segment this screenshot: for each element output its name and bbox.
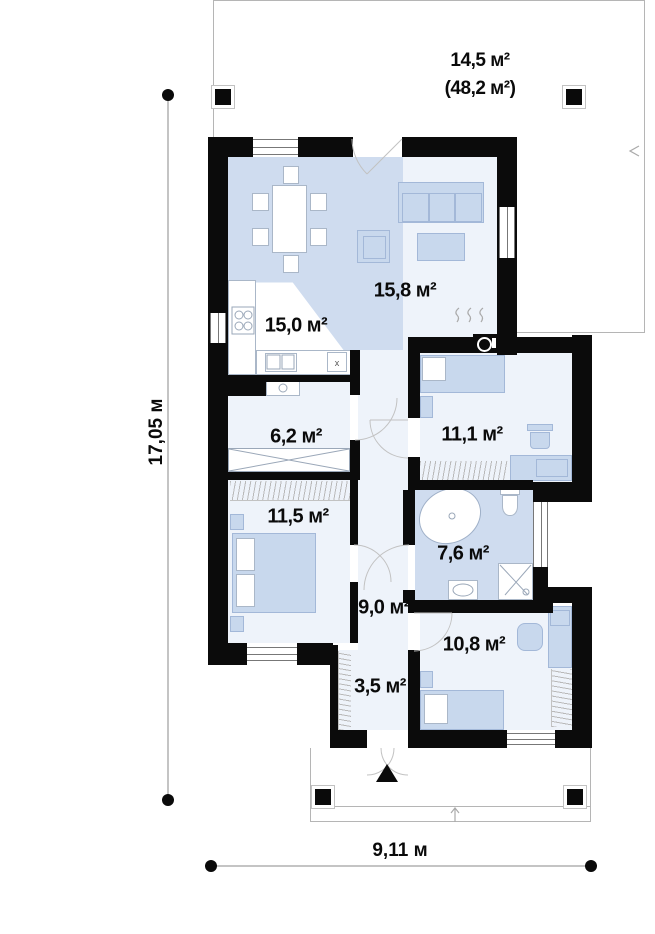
wardrobe-hatch bbox=[230, 481, 350, 501]
terrace-chevron-icon bbox=[630, 146, 639, 156]
wall bbox=[297, 643, 333, 665]
wardrobe-hatch bbox=[420, 461, 508, 482]
dim-dot bbox=[162, 794, 174, 806]
pillow bbox=[424, 694, 448, 724]
window bbox=[533, 502, 548, 567]
wall bbox=[298, 137, 353, 157]
column bbox=[215, 89, 231, 105]
wall bbox=[350, 480, 358, 545]
wall bbox=[408, 337, 592, 353]
coffee-table bbox=[417, 233, 465, 261]
dim-height-label: 17,05 м bbox=[146, 382, 168, 482]
plant-pot-icon bbox=[530, 432, 550, 449]
chair bbox=[252, 193, 269, 211]
toilet-bowl bbox=[502, 495, 518, 516]
wall bbox=[548, 587, 592, 603]
sofa-cushion bbox=[454, 193, 482, 222]
column bbox=[315, 789, 331, 805]
pillow bbox=[236, 538, 255, 571]
wall bbox=[208, 137, 228, 655]
window bbox=[253, 139, 298, 155]
wall bbox=[572, 587, 592, 748]
chair bbox=[310, 193, 327, 211]
column bbox=[566, 89, 582, 105]
hall-counter bbox=[266, 381, 300, 396]
nightstand bbox=[420, 396, 433, 418]
pillow bbox=[236, 574, 255, 607]
wall bbox=[350, 440, 360, 475]
desk-laptop bbox=[550, 610, 570, 626]
stove-ring-icon bbox=[477, 337, 492, 352]
room-area-label: 15,0 м² bbox=[265, 315, 327, 338]
terrace-edge-left bbox=[213, 0, 214, 137]
dim-width-label: 9,11 м bbox=[350, 840, 450, 862]
room-area-label: 15,8 м² bbox=[374, 280, 436, 303]
pillow bbox=[422, 357, 446, 381]
wall bbox=[408, 480, 533, 490]
shower bbox=[498, 563, 533, 600]
bath-sink bbox=[448, 580, 478, 600]
sofa-cushion bbox=[402, 193, 430, 222]
chair bbox=[310, 228, 327, 246]
armchair-seat bbox=[363, 236, 386, 259]
vent-label: x bbox=[335, 358, 340, 368]
plant-pot-icon bbox=[527, 424, 553, 431]
vent-shaft: x bbox=[327, 352, 347, 372]
kitchen-sink bbox=[265, 353, 297, 372]
nightstand bbox=[230, 514, 244, 530]
chair bbox=[283, 166, 299, 184]
wardrobe-hatch bbox=[551, 669, 572, 727]
terrace-area-label: 14,5 м² bbox=[450, 50, 509, 72]
wall bbox=[408, 353, 420, 418]
chair bbox=[283, 255, 299, 273]
wall bbox=[228, 472, 360, 480]
wall bbox=[408, 457, 420, 482]
terrace-total-label: (48,2 м²) bbox=[445, 78, 516, 100]
dim-dot bbox=[205, 860, 217, 872]
room-area-label: 11,5 м² bbox=[267, 506, 328, 529]
room-area-label: 10,8 м² bbox=[443, 634, 505, 657]
wall bbox=[403, 490, 415, 545]
wall bbox=[208, 643, 247, 665]
wall bbox=[533, 567, 548, 603]
wall bbox=[408, 730, 507, 748]
wall bbox=[572, 335, 592, 502]
entrance-marker-icon bbox=[376, 764, 398, 782]
room-area-label: 7,6 м² bbox=[437, 543, 489, 566]
nightstand bbox=[230, 616, 244, 632]
window bbox=[507, 733, 555, 745]
terrace-edge-top bbox=[213, 0, 645, 1]
wall bbox=[228, 375, 360, 382]
sofa-cushion bbox=[428, 193, 456, 222]
room-area-label: 11,1 м² bbox=[441, 424, 502, 447]
porch-outline bbox=[310, 748, 591, 822]
dresser-top bbox=[536, 459, 568, 477]
dining-table bbox=[272, 185, 307, 253]
desk-chair bbox=[517, 623, 543, 651]
wall bbox=[408, 650, 420, 730]
column bbox=[567, 789, 583, 805]
wall bbox=[350, 582, 358, 643]
dim-dot bbox=[162, 89, 174, 101]
window bbox=[247, 647, 297, 661]
stove-door-icon bbox=[492, 338, 496, 348]
wardrobe-hatch bbox=[338, 651, 351, 730]
hall-wardrobe bbox=[228, 448, 350, 472]
dim-dot bbox=[585, 860, 597, 872]
floor-plan: x bbox=[0, 0, 655, 934]
window bbox=[210, 313, 226, 343]
appliance-unit-icon bbox=[228, 380, 266, 396]
terrace-edge-bottom bbox=[517, 332, 645, 333]
wall bbox=[330, 730, 367, 748]
chair bbox=[252, 228, 269, 246]
wall bbox=[408, 600, 553, 613]
room-area-label: 6,2 м² bbox=[270, 426, 322, 449]
nightstand bbox=[420, 671, 433, 688]
terrace-edge-right bbox=[644, 0, 645, 333]
kitchen-counter-left bbox=[228, 280, 256, 375]
porch-step-line bbox=[310, 806, 591, 807]
room-area-label: 9,0 м² bbox=[358, 597, 410, 620]
window bbox=[499, 207, 515, 258]
wall bbox=[350, 350, 360, 395]
room-area-label: 3,5 м² bbox=[354, 676, 406, 699]
